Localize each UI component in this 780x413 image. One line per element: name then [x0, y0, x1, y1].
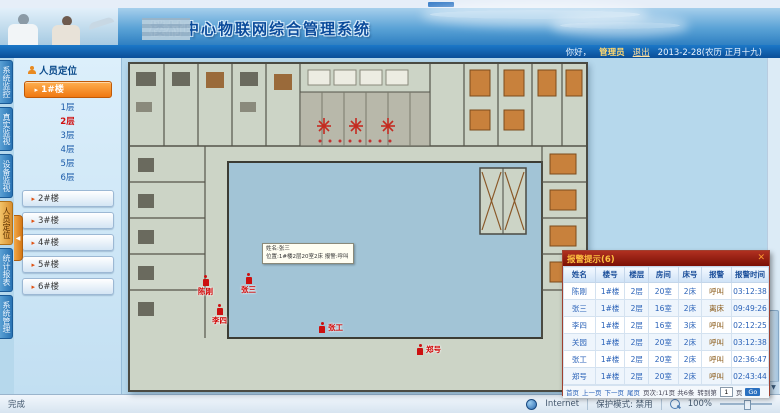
zoom-slider-knob[interactable]	[744, 400, 751, 410]
person-marker[interactable]: 李四	[212, 304, 227, 326]
nav-tab-strip: 系统监控真实监视设备监视人员定位统计报表系统管理	[0, 60, 14, 342]
table-cell: 02:43:44	[731, 368, 768, 385]
photo-person-body	[52, 25, 80, 45]
table-cell: 02:12:25	[731, 317, 768, 334]
table-cell: 呼叫	[702, 351, 732, 368]
building-button-label: 3#楼	[38, 216, 59, 226]
marker-name: 陈刚	[198, 286, 213, 297]
pager-page-input[interactable]	[720, 387, 733, 397]
building-button-active[interactable]: ▸1#楼	[24, 81, 112, 98]
table-cell: 1#楼	[595, 368, 625, 385]
pager-first[interactable]: 首页	[566, 387, 579, 397]
banner-photo	[0, 8, 118, 45]
table-cell: 郑号	[564, 368, 596, 385]
table-cell: 1#楼	[595, 317, 625, 334]
table-cell: 离床	[702, 300, 732, 317]
zoom-icon[interactable]	[670, 399, 680, 409]
table-cell: 09:49:26	[731, 300, 768, 317]
pager: 首页 上一页 下一页 尾页 页次:1/1页 共6条 转到第 页 Go	[563, 385, 769, 398]
table-row[interactable]: 张工1#楼2层20室2床呼叫02:36:47	[564, 351, 769, 368]
divider	[661, 399, 662, 410]
table-cell: 呼叫	[702, 317, 732, 334]
nav-tab[interactable]: 真实监视	[0, 107, 13, 151]
divider	[587, 399, 588, 410]
table-cell: 20室	[648, 351, 678, 368]
chevron-right-icon: ▸	[35, 86, 39, 94]
table-cell: 2床	[678, 351, 702, 368]
person-icon	[245, 273, 253, 284]
building-button[interactable]: ▸2#楼	[22, 190, 114, 207]
pager-prev[interactable]: 上一页	[582, 387, 602, 397]
close-icon[interactable]: ✕	[757, 254, 765, 263]
table-cell: 2层	[625, 283, 649, 300]
marker-name: 张工	[328, 322, 343, 333]
marker-name: 郑号	[426, 344, 441, 355]
table-cell: 2床	[678, 283, 702, 300]
table-cell: 呼叫	[702, 334, 732, 351]
alarm-panel-title: 报警提示(6)	[567, 253, 615, 265]
alarm-table-header-row: 姓名楼号楼层房间床号报警报警时间	[564, 267, 769, 283]
table-cell: 20室	[648, 368, 678, 385]
table-cell: 关园	[564, 334, 596, 351]
alarm-table-body: 陈刚1#楼2层20室2床呼叫03:12:38张三1#楼2层16室2床离床09:4…	[564, 283, 769, 385]
browser-ui-fragment	[428, 2, 454, 7]
date-text: 2013-2-28(农历 正月十九)	[658, 46, 762, 58]
building-button-label: 6#楼	[38, 282, 59, 292]
column-header: 楼层	[625, 267, 649, 283]
column-header: 房间	[648, 267, 678, 283]
table-cell: 2层	[625, 334, 649, 351]
table-cell: 1#楼	[595, 351, 625, 368]
table-cell: 20室	[648, 283, 678, 300]
table-cell: 16室	[648, 300, 678, 317]
table-cell: 张工	[564, 351, 596, 368]
person-icon	[216, 304, 224, 315]
stairs-block	[480, 168, 526, 234]
censor-mosaic	[142, 18, 190, 40]
collapse-icon: ◀	[16, 235, 21, 242]
building-button[interactable]: ▸3#楼	[22, 212, 114, 229]
floor-link[interactable]: 4层	[14, 143, 121, 157]
building-button-label: 5#楼	[38, 260, 59, 270]
table-cell: 2床	[678, 334, 702, 351]
username: 管理员	[599, 46, 625, 58]
nav-tab[interactable]: 系统管理	[0, 295, 13, 339]
table-row[interactable]: 张三1#楼2层16室2床离床09:49:26	[564, 300, 769, 317]
table-row[interactable]: 郑号1#楼2层20室2床呼叫02:43:44	[564, 368, 769, 385]
building-button[interactable]: ▸4#楼	[22, 234, 114, 251]
floor-link[interactable]: 5层	[14, 157, 121, 171]
column-header: 姓名	[564, 267, 596, 283]
alarm-table: 姓名楼号楼层房间床号报警报警时间 陈刚1#楼2层20室2床呼叫03:12:38张…	[563, 266, 769, 385]
pager-go-button[interactable]: Go	[745, 388, 760, 396]
nav-tab[interactable]: 系统监控	[0, 60, 13, 104]
table-cell: 呼叫	[702, 368, 732, 385]
floor-link[interactable]: 1层	[14, 101, 121, 115]
table-cell: 2床	[678, 368, 702, 385]
table-cell: 李四	[564, 317, 596, 334]
photo-person-body	[8, 24, 38, 45]
greeting-bar: 你好， 管理员 退出 2013-2-28(农历 正月十九)	[0, 45, 780, 58]
column-header: 报警时间	[731, 267, 768, 283]
chevron-right-icon: ▸	[32, 239, 36, 247]
person-marker[interactable]: 郑号	[416, 344, 441, 355]
table-cell: 2层	[625, 317, 649, 334]
alarm-panel: 报警提示(6) ✕ 姓名楼号楼层房间床号报警报警时间 陈刚1#楼2层20室2床呼…	[562, 250, 770, 396]
column-header: 楼号	[595, 267, 625, 283]
table-cell: 02:36:47	[731, 351, 768, 368]
zone-label: Internet	[545, 399, 579, 409]
chevron-right-icon: ▸	[32, 217, 36, 225]
table-cell: 陈刚	[564, 283, 596, 300]
table-cell: 2层	[625, 351, 649, 368]
person-marker[interactable]: 张三	[241, 273, 256, 295]
building-button[interactable]: ▸5#楼	[22, 256, 114, 273]
table-cell: 03:12:38	[731, 334, 768, 351]
globe-icon	[526, 399, 537, 410]
status-done-text: 完成	[8, 398, 25, 410]
map-tooltip: 姓名:张三 位置:1#楼2层20室2床 报警:呼叫	[262, 243, 354, 264]
photo-arm	[88, 16, 115, 30]
chevron-right-icon: ▸	[32, 283, 36, 291]
building-button-label: 1#楼	[41, 85, 64, 95]
table-row[interactable]: 陈刚1#楼2层20室2床呼叫03:12:38	[564, 283, 769, 300]
table-row[interactable]: 关园1#楼2层20室2床呼叫03:12:38	[564, 334, 769, 351]
table-cell: 2层	[625, 368, 649, 385]
floor-list: 1层2层3层4层5层6层	[14, 101, 121, 185]
sidebar-header: 人员定位	[28, 63, 121, 77]
pager-next[interactable]: 下一页	[605, 387, 625, 397]
table-cell: 16室	[648, 317, 678, 334]
table-cell: 呼叫	[702, 283, 732, 300]
sidebar-title: 人员定位	[39, 63, 77, 77]
nav-tab[interactable]: 统计报表	[0, 248, 13, 292]
building-list: ▸2#楼▸3#楼▸4#楼▸5#楼▸6#楼	[14, 190, 121, 295]
header-banner: 楼村中心物联网综合管理系统	[0, 8, 780, 45]
floor-plan-svg	[128, 62, 588, 392]
building-button-label: 2#楼	[38, 194, 59, 204]
building-button-label: 4#楼	[38, 238, 59, 248]
pager-last[interactable]: 尾页	[627, 387, 640, 397]
table-cell: 1#楼	[595, 334, 625, 351]
logout-link[interactable]: 退出	[633, 46, 650, 58]
person-marker[interactable]: 陈刚	[198, 275, 213, 297]
floor-link[interactable]: 6层	[14, 171, 121, 185]
table-cell: 2层	[625, 300, 649, 317]
pager-page-unit: 页	[736, 387, 743, 397]
building-button[interactable]: ▸6#楼	[22, 278, 114, 295]
pager-info: 页次:1/1页 共6条	[643, 387, 694, 397]
column-header: 报警	[702, 267, 732, 283]
zoom-slider[interactable]	[720, 403, 772, 405]
table-cell: 1#楼	[595, 283, 625, 300]
nav-tab[interactable]: 设备监视	[0, 154, 13, 198]
pager-goto-label: 转到第	[697, 387, 717, 397]
tooltip-line2: 位置:1#楼2层20室2床 报警:呼叫	[266, 253, 350, 261]
person-icon	[202, 275, 210, 286]
chevron-right-icon: ▸	[32, 261, 36, 269]
floor-plan[interactable]	[128, 62, 588, 392]
table-cell: 03:12:38	[731, 283, 768, 300]
table-cell: 2床	[678, 300, 702, 317]
tooltip-line1: 姓名:张三	[266, 245, 350, 253]
status-right-cluster: Internet 保护模式: 禁用 100%	[526, 398, 772, 410]
scrollbar-thumb[interactable]	[769, 310, 779, 386]
person-icon	[416, 344, 424, 355]
nav-tab[interactable]: 人员定位	[0, 201, 13, 245]
banner-cloud	[560, 22, 680, 29]
zoom-level[interactable]: 100%	[688, 399, 712, 409]
person-icon	[28, 66, 36, 74]
table-cell: 张三	[564, 300, 596, 317]
floor-link[interactable]: 3层	[14, 129, 121, 143]
marker-name: 张三	[241, 284, 256, 295]
table-row[interactable]: 李四1#楼2层16室3床呼叫02:12:25	[564, 317, 769, 334]
floor-link[interactable]: 2层	[14, 115, 121, 129]
column-header: 床号	[678, 267, 702, 283]
greeting-text: 你好，	[566, 46, 592, 58]
protected-mode-text: 保护模式: 禁用	[596, 398, 653, 410]
table-cell: 3床	[678, 317, 702, 334]
marker-name: 李四	[212, 315, 227, 326]
person-icon	[318, 322, 326, 333]
table-cell: 20室	[648, 334, 678, 351]
alarm-panel-titlebar[interactable]: 报警提示(6) ✕	[563, 251, 769, 266]
sidebar: 人员定位 ▸1#楼 1层2层3层4层5层6层 ▸2#楼▸3#楼▸4#楼▸5#楼▸…	[14, 58, 122, 394]
table-cell: 1#楼	[595, 300, 625, 317]
banner-cloud	[430, 10, 640, 19]
chevron-right-icon: ▸	[32, 195, 36, 203]
app-window: 楼村中心物联网综合管理系统 你好， 管理员 退出 2013-2-28(农历 正月…	[0, 0, 780, 413]
sidebar-collapse-handle[interactable]: ◀	[14, 215, 23, 261]
person-marker[interactable]: 张工	[318, 322, 343, 333]
